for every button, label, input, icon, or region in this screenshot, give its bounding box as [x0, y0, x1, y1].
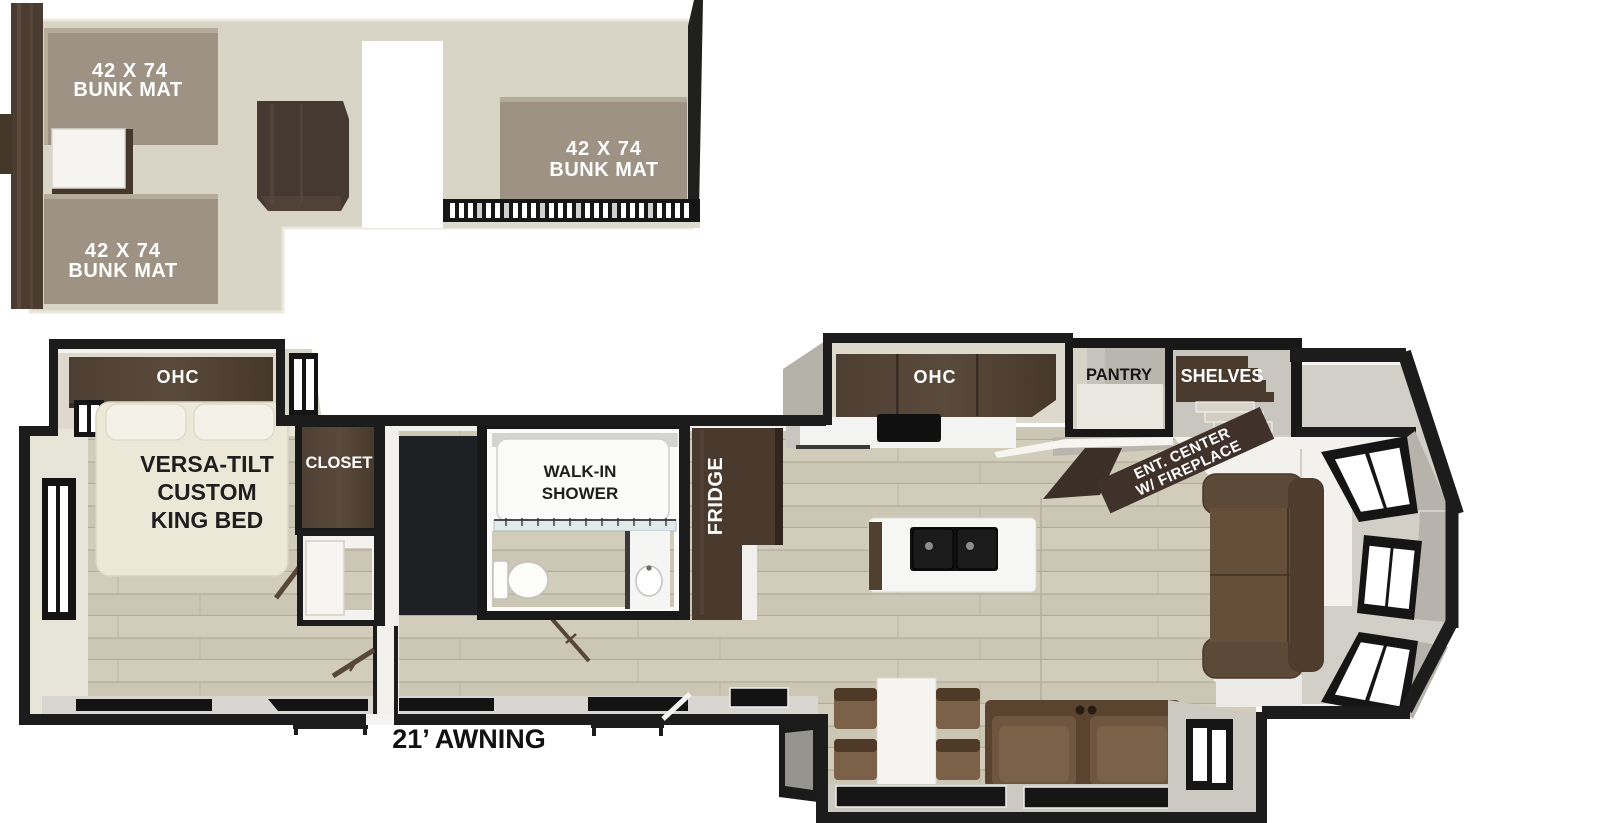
svg-text:PANTRY: PANTRY: [1086, 366, 1152, 384]
svg-text:BUNK MAT: BUNK MAT: [68, 260, 177, 282]
svg-text:42 X 74: 42 X 74: [566, 138, 642, 160]
svg-text:CLOSET: CLOSET: [306, 454, 373, 472]
svg-text:CUSTOM: CUSTOM: [157, 479, 256, 505]
svg-text:42 X 74: 42 X 74: [85, 240, 161, 262]
svg-text:VERSA-TILT: VERSA-TILT: [140, 451, 274, 477]
svg-text:BUNK MAT: BUNK MAT: [549, 159, 658, 181]
svg-text:KING BED: KING BED: [151, 507, 263, 533]
svg-text:WALK-IN: WALK-IN: [544, 462, 617, 481]
svg-text:SHOWER: SHOWER: [542, 484, 619, 503]
svg-text:BUNK MAT: BUNK MAT: [73, 79, 182, 101]
svg-text:OHC: OHC: [914, 367, 957, 387]
svg-text:FRIDGE: FRIDGE: [705, 457, 727, 536]
svg-text:OHC: OHC: [157, 367, 200, 387]
svg-text:21’ AWNING: 21’ AWNING: [392, 724, 546, 754]
svg-text:SHELVES: SHELVES: [1181, 366, 1264, 386]
